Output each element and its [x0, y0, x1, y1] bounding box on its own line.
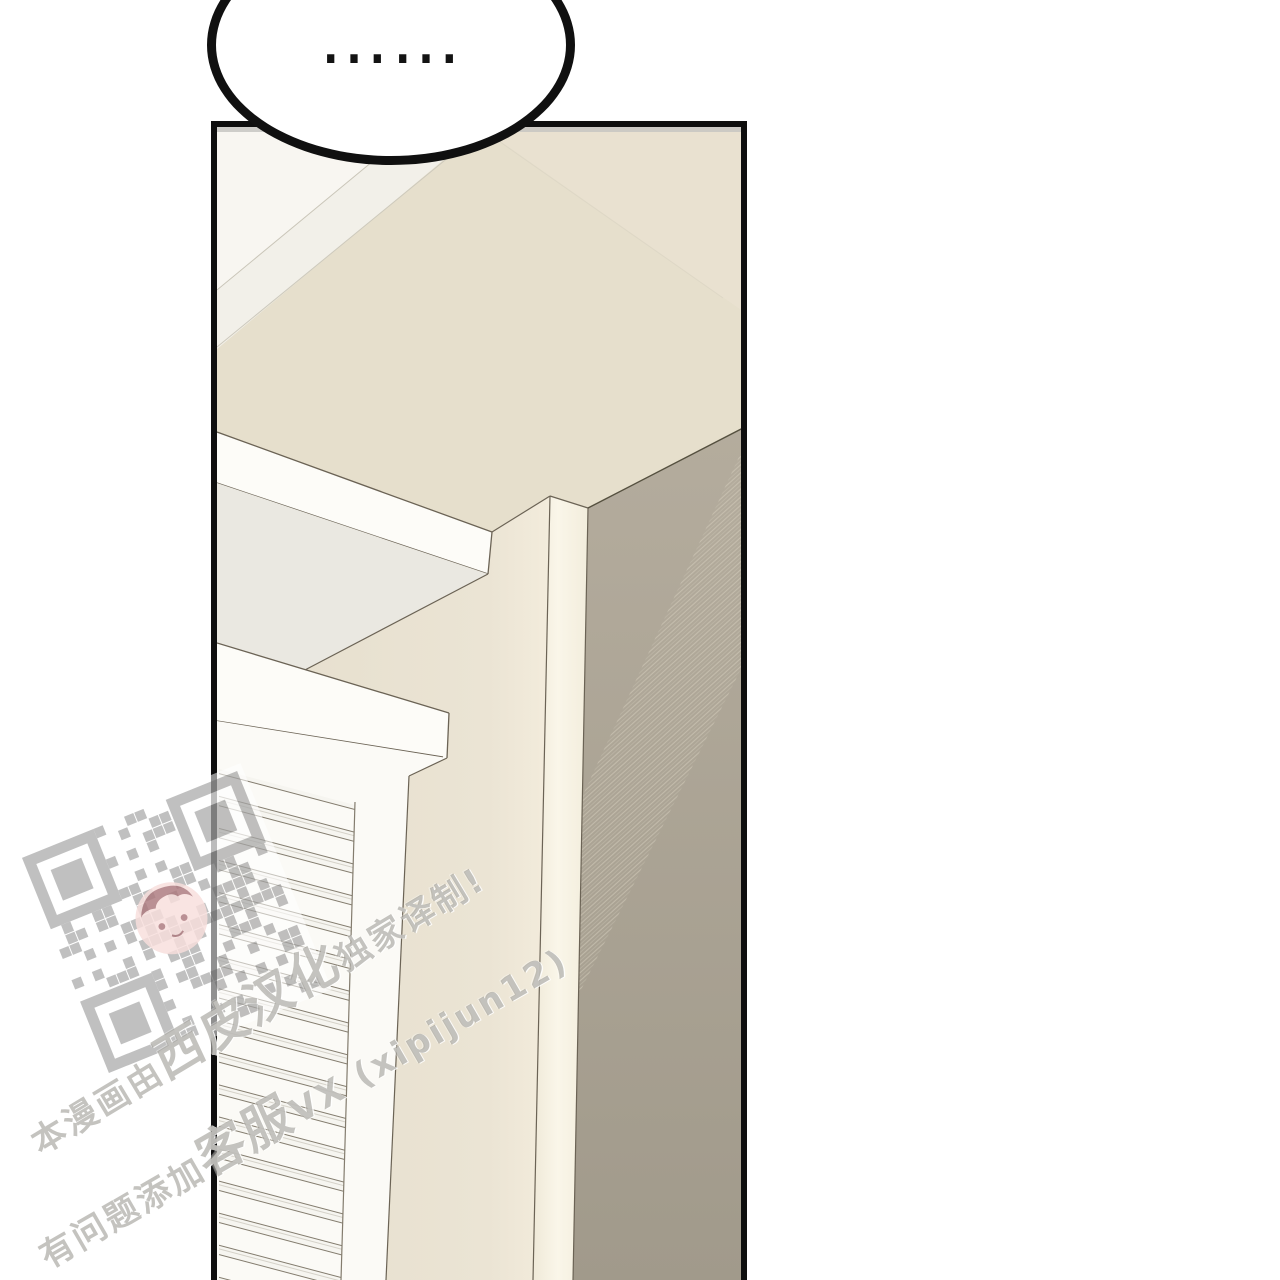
- comic-page: 本漫画由西皮汉化独家译制! 有问题添加客服VX (xipijun12) ……: [0, 0, 1280, 1280]
- speech-bubble-text: ……: [216, 4, 566, 74]
- qr-finder-bottom-left: [80, 973, 180, 1073]
- watermark-line1-prefix: 本漫画由: [24, 1052, 171, 1163]
- qr-mascot-face: [125, 871, 219, 965]
- panel-scene: [217, 127, 741, 1280]
- qr-finder-top-left: [22, 829, 122, 929]
- window-blinds: [219, 769, 355, 1280]
- watermark-line2-prefix: 有问题添加: [33, 1150, 213, 1277]
